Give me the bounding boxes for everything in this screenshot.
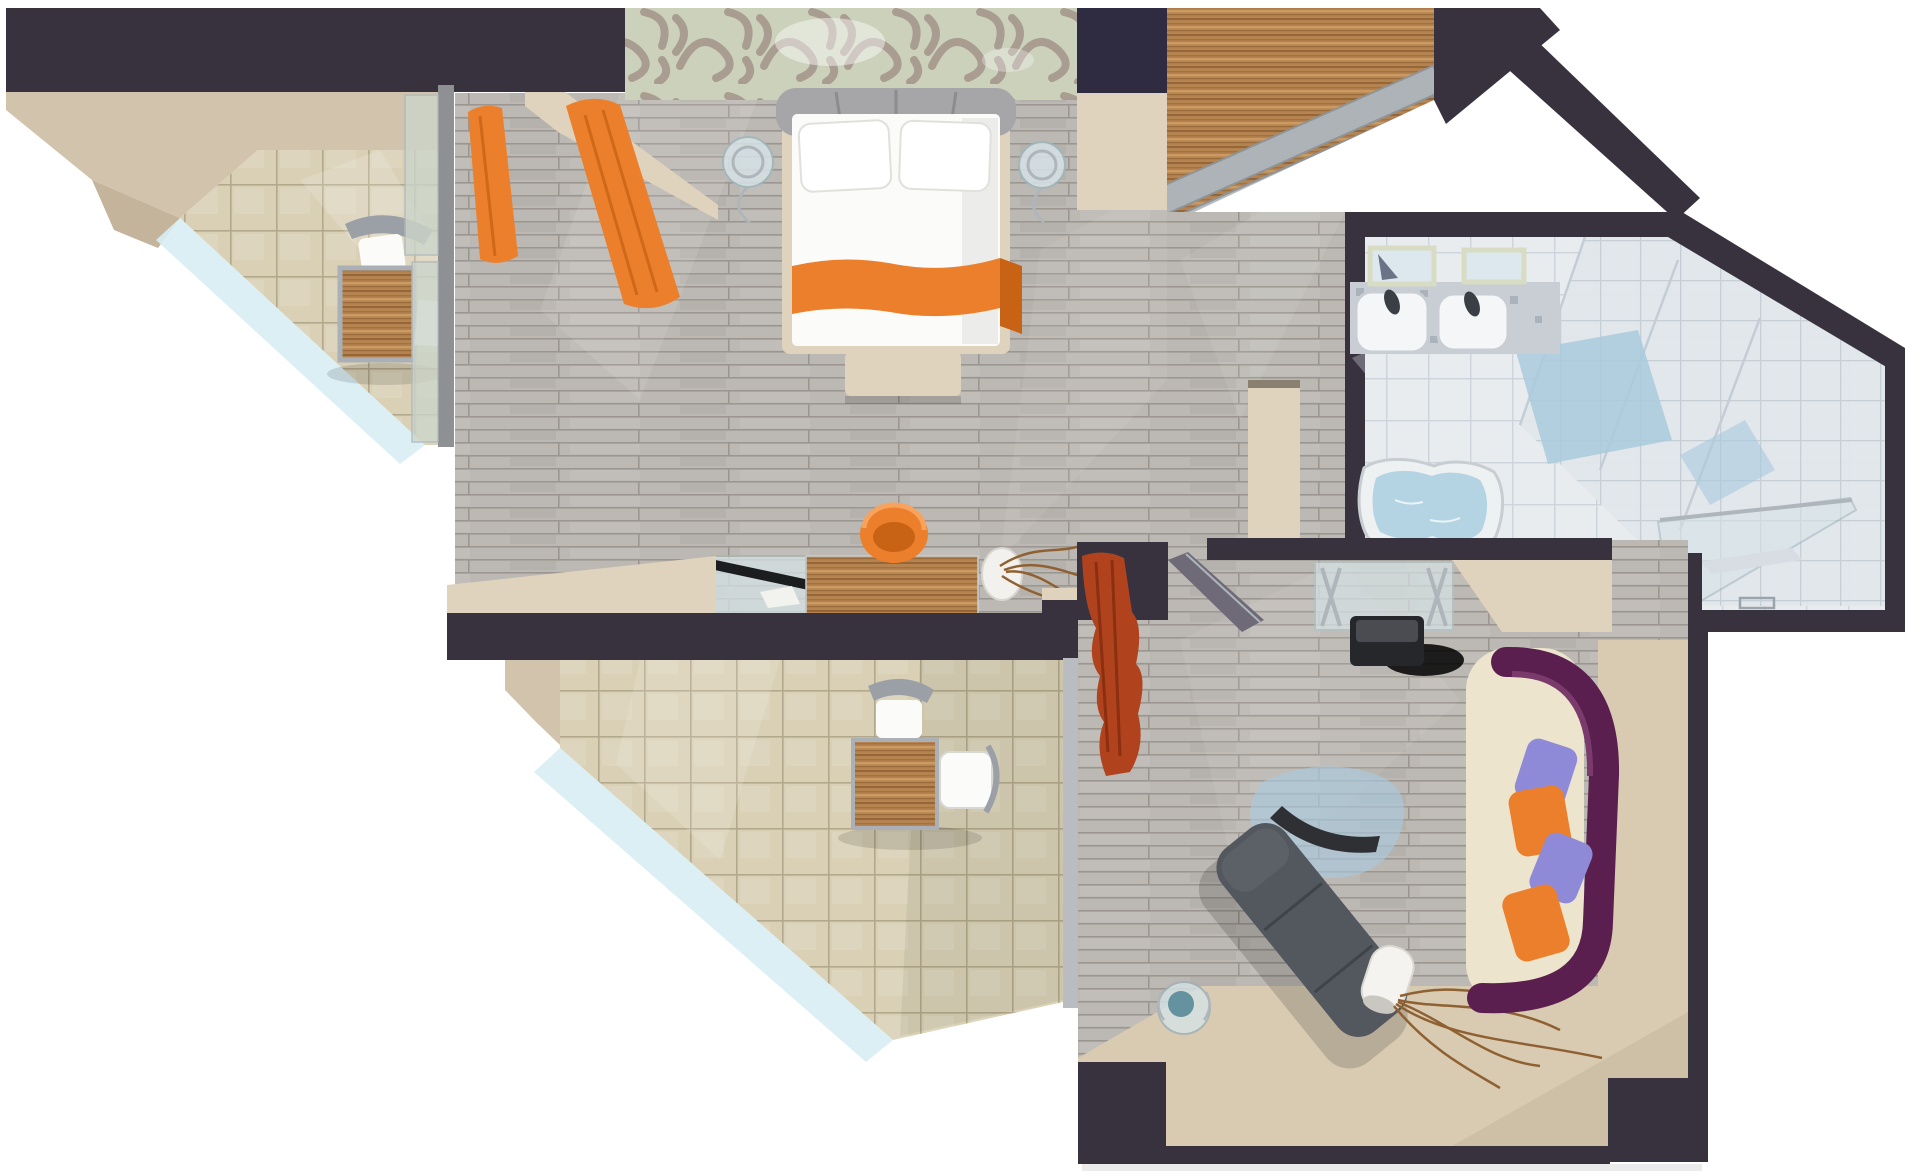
living-bottom-right-wall-block	[1608, 1078, 1708, 1162]
bedroom-window-glass-1	[405, 95, 438, 255]
living-bottom-wall	[1078, 1146, 1610, 1164]
outer-shadow-bottom	[1082, 1164, 1702, 1171]
floorplan-svg	[0, 0, 1920, 1173]
bedroom-desk	[806, 556, 978, 618]
room-living	[1063, 538, 1708, 1171]
bedroom-window-glass-2	[412, 262, 438, 442]
bedroom-top-wall-left	[447, 8, 625, 92]
sill-top	[1042, 588, 1078, 602]
lower-desk	[853, 740, 937, 828]
bathroom-top-wall	[1345, 212, 1682, 237]
bench-shadow	[845, 396, 961, 404]
sofa	[1466, 648, 1604, 1006]
bedroom-beige-wall-face	[1077, 93, 1167, 210]
lower-chair-b-seat	[940, 752, 992, 808]
wallpaper-light-spot-2	[982, 48, 1034, 72]
living-window-frame	[1063, 658, 1078, 1008]
living-bottom-left-wall-block	[1078, 1062, 1166, 1150]
side-table	[1158, 982, 1210, 1034]
bed-runner-overhang	[1000, 258, 1022, 334]
upper-desk	[340, 268, 414, 360]
bed-foot-bench	[845, 352, 961, 396]
hall-console-panel	[1248, 388, 1300, 553]
orange-chair-seat	[873, 522, 915, 552]
lower-balcony-wall-face	[505, 660, 560, 745]
room-balcony-lower	[505, 660, 1063, 1062]
bedroom-window-frame	[438, 85, 454, 447]
room-balcony-upper	[6, 8, 447, 464]
living-top-wall	[1207, 538, 1612, 560]
bed-runner-orange	[792, 258, 1000, 316]
sill-block	[1042, 600, 1078, 658]
lower-chair-a-seat	[876, 700, 922, 738]
upper-balcony-outer-wall	[6, 8, 447, 92]
mirror-right	[1464, 250, 1524, 282]
mirror-left	[1370, 248, 1434, 284]
bed-pillow-right	[899, 120, 991, 191]
blue-bowl	[1168, 991, 1194, 1017]
bedroom-vase	[982, 548, 1022, 600]
living-right-wall	[1688, 632, 1708, 1078]
bed-pillow-left	[798, 120, 891, 193]
bathroom-right-wall	[1885, 348, 1905, 632]
tv-screen-glare	[1356, 620, 1418, 642]
bedroom-navy-wall-block	[1077, 8, 1167, 93]
wallpaper-light-spot-1	[775, 18, 885, 66]
bathtub-water	[1373, 471, 1488, 541]
floorplan-render	[0, 0, 1920, 1173]
bedroom-bathroom-diagonal-wall	[1500, 36, 1700, 220]
